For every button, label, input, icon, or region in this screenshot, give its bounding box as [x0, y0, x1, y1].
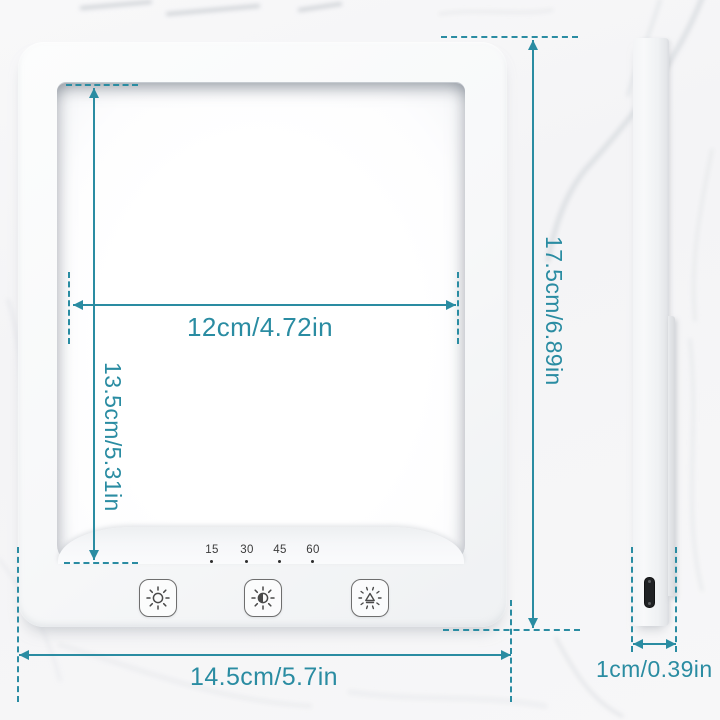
usb-c-port: [644, 577, 655, 608]
kickstand-edge: [668, 316, 675, 596]
dimension-label-panel-height: 13.5cm/5.31in: [99, 362, 126, 512]
extension-line-depth-left: [631, 547, 633, 652]
extension-line-device-top: [441, 36, 578, 38]
timer-mark-label: 30: [234, 544, 260, 556]
timer-indicator-dot: [278, 560, 281, 563]
product-dimensions-diagram: 15 30 45 60: [0, 0, 720, 720]
sun-half-icon: [250, 585, 276, 611]
dimension-label-panel-width: 12cm/4.72in: [160, 312, 360, 343]
sun-ring-icon: [145, 585, 171, 611]
timer-dial-icon: [357, 585, 383, 611]
lamp-side-view: [633, 38, 669, 626]
dimension-arrow-device-height: [532, 40, 534, 628]
control-deck: [58, 527, 464, 564]
dimension-arrow-panel-width: [73, 304, 456, 306]
brightness-button: [244, 579, 282, 617]
extension-line-panel-right: [457, 272, 459, 344]
dimension-label-device-width: 14.5cm/5.7in: [154, 663, 374, 692]
timer-indicator-dot: [245, 560, 248, 563]
dimension-label-device-depth: 1cm/0.39in: [596, 656, 710, 683]
dimension-label-device-height: 17.5cm/6.89in: [540, 236, 567, 386]
timer-mark-label: 60: [300, 544, 326, 556]
timer-button: [351, 579, 389, 617]
extension-line-width-left: [17, 547, 19, 702]
timer-indicator-dot: [311, 560, 314, 563]
dimension-arrow-panel-height: [93, 88, 95, 560]
extension-line-panel-left: [68, 272, 70, 344]
extension-line-panel-top: [66, 84, 138, 86]
dimension-arrow-device-depth: [633, 643, 676, 645]
timer-mark-label: 15: [199, 544, 225, 556]
dimension-arrow-device-width: [19, 654, 511, 656]
timer-mark-label: 45: [267, 544, 293, 556]
extension-line-depth-right: [675, 547, 677, 652]
timer-indicator-dot: [210, 560, 213, 563]
power-button: [139, 579, 177, 617]
extension-line-panel-bottom: [64, 562, 138, 564]
